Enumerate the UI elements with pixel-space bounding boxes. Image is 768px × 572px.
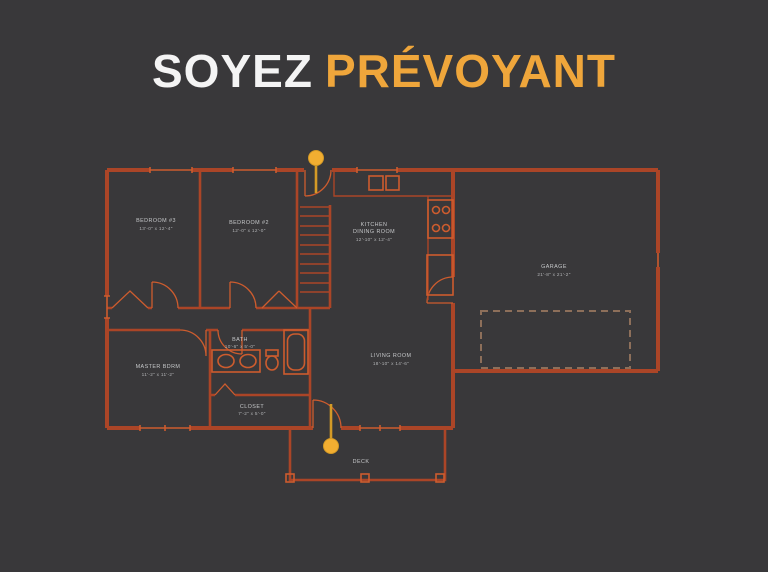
bedroom2-door xyxy=(230,282,256,308)
room-label-living: LIVING ROOM xyxy=(371,353,412,359)
doors xyxy=(112,170,453,428)
room-label-closet: CLOSET xyxy=(240,404,265,410)
stove-icon xyxy=(428,200,453,238)
bathtub-icon xyxy=(284,330,308,374)
kitchen-counter xyxy=(334,172,453,300)
room-label-dining: DINING ROOM xyxy=(353,229,395,235)
bedroom3-door xyxy=(152,282,178,308)
master-door xyxy=(180,330,206,356)
kitchen-garage-door xyxy=(427,277,453,303)
entry-door-pin[interactable] xyxy=(309,151,324,194)
slide: SOYEZPRÉVOYANT xyxy=(0,0,768,572)
closet-bifold-door xyxy=(215,384,235,395)
sink-left-icon xyxy=(218,355,234,368)
exterior-walls xyxy=(107,170,658,428)
room-label-bedroom3: BEDROOM #3 xyxy=(136,218,176,224)
staircase xyxy=(300,207,330,292)
room-dims-master: 11'-2" x 11'-2" xyxy=(142,372,175,377)
windows xyxy=(104,167,658,431)
kitchen-sink-icon xyxy=(369,176,399,190)
room-label-deck: DECK xyxy=(353,459,370,465)
room-label-garage: GARAGE xyxy=(541,264,567,270)
deck-structure xyxy=(286,428,445,482)
bath-fixtures xyxy=(212,330,308,374)
entry-pin-head-icon xyxy=(309,151,324,166)
room-dims-garage: 21'-8" x 21'-2" xyxy=(537,272,570,277)
deck-door xyxy=(313,400,341,428)
room-dims-bedroom3: 13'-0" x 12'-4" xyxy=(139,226,172,231)
room-dims-bedroom2: 12'-0" x 12'-0" xyxy=(232,228,265,233)
floor-plan: BEDROOM #3 13'-0" x 12'-4" BEDROOM #2 12… xyxy=(0,0,768,572)
room-dims-bath: 10'-6" x 5'-0" xyxy=(225,344,255,349)
kitchen-fixtures xyxy=(334,172,453,300)
bedroom2-closet-bifold xyxy=(262,291,297,308)
room-dims-closet: 7'-2" x 5'-0" xyxy=(238,411,266,416)
room-label-kitchen: KITCHEN xyxy=(361,222,388,228)
sink-right-icon xyxy=(240,355,256,368)
garage-dashed-area xyxy=(481,311,630,368)
deck-pin-head-icon xyxy=(324,439,339,454)
room-label-master: MASTER BDRM xyxy=(136,364,181,370)
room-dims-kitchen: 12'-10" x 12'-4" xyxy=(356,237,392,242)
toilet-icon xyxy=(266,350,278,370)
entry-door xyxy=(305,170,331,196)
interior-walls xyxy=(107,170,330,428)
room-dims-living: 18'-10" x 14'-6" xyxy=(373,361,409,366)
room-label-bath: BATH xyxy=(232,337,248,343)
bedroom3-closet-bifold xyxy=(112,291,148,308)
room-label-bedroom2: BEDROOM #2 xyxy=(229,220,269,226)
